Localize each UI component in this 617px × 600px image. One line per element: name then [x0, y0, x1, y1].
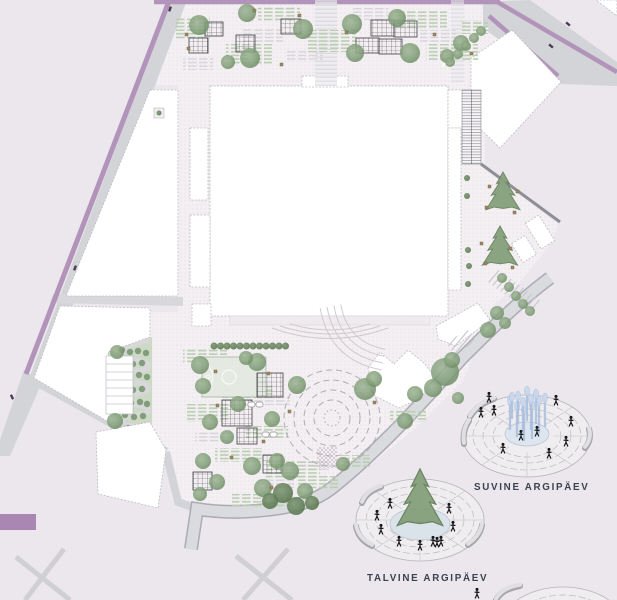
purple-legend-block — [0, 514, 36, 530]
fountain-pool — [505, 422, 549, 446]
site-plan-drawing: SUVINE ARGIPÄEV TALVINE ARGIPÄEV — [0, 0, 617, 600]
bus-stop-marker — [154, 108, 164, 118]
label-winter: TALVINE ARGIPÄEV — [367, 573, 488, 584]
main-building — [210, 86, 448, 316]
label-summer: SUVINE ARGIPÄEV — [474, 482, 590, 493]
site-plan-canvas: SUVINE ARGIPÄEV TALVINE ARGIPÄEV — [0, 0, 617, 600]
parking-strip — [106, 356, 133, 414]
